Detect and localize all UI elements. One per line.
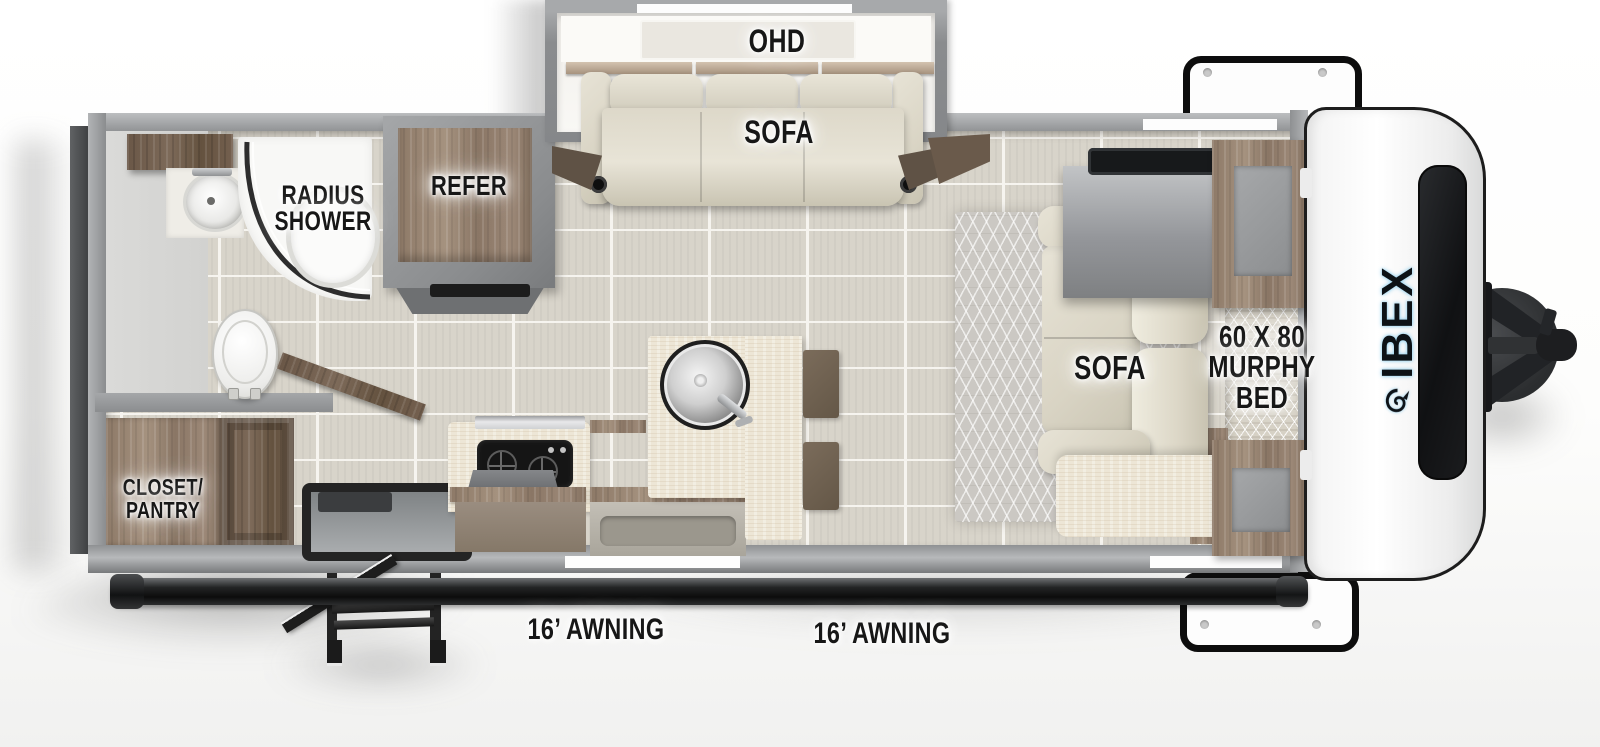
window-strip-bottom-wall-right — [1150, 556, 1282, 568]
label-murphy-bed: 60 X 80 MURPHY BED — [1208, 322, 1315, 413]
shadow-under-steps — [250, 640, 510, 710]
toilet-seat — [222, 320, 268, 384]
bathroom-divider-wall — [95, 393, 333, 412]
ottoman — [803, 442, 839, 510]
ohd-wood-trim — [696, 62, 818, 74]
step-foot-right — [430, 640, 446, 666]
step-foot-left — [327, 640, 342, 666]
kitchen-peninsula-column — [745, 336, 802, 540]
label-slide-sofa: SOFA — [744, 117, 814, 148]
faucet-icon — [192, 168, 232, 176]
awning-end-cap-right — [1276, 576, 1308, 607]
ibex-logo-text: IBEX — [1373, 264, 1423, 379]
toilet-hinge — [228, 388, 239, 400]
ottoman — [803, 350, 839, 418]
window-strip-bottom-wall-left — [565, 556, 740, 568]
cap-window — [1418, 165, 1467, 480]
awning-rail — [112, 578, 1308, 605]
label-ohd: OHD — [749, 26, 806, 57]
label-awning-right: 16’ AWNING — [814, 619, 951, 648]
rear-bumper — [70, 126, 89, 554]
sofa-seat-seam — [1044, 337, 1138, 339]
screw-icon — [1312, 620, 1321, 629]
tv-cabinet — [1063, 166, 1215, 298]
wall-left — [88, 113, 106, 573]
cap-hinge — [1300, 168, 1312, 198]
counter-wood-strip-mid — [590, 420, 646, 433]
window-strip-top-wall — [1143, 119, 1277, 130]
base-cabinet-left — [455, 502, 586, 552]
awning-end-cap-left — [110, 574, 144, 609]
ohd-wood-trim — [566, 62, 692, 74]
label-awning-left: 16’ AWNING — [528, 615, 665, 644]
slide-sofa-seam — [700, 112, 702, 202]
stove-knob — [548, 447, 554, 453]
screw-icon — [1203, 68, 1212, 77]
closet-door — [222, 418, 294, 545]
screw-icon — [1200, 620, 1209, 629]
ibex-logo: IBEX — [1373, 264, 1423, 416]
toilet-hinge — [250, 388, 261, 400]
base-cabinet-recess — [600, 516, 736, 546]
ibex-ram-icon — [1383, 386, 1413, 416]
label-refer: REFER — [431, 172, 507, 199]
bed-frame-window-bottom — [1232, 468, 1290, 532]
sink-drain-icon — [207, 197, 215, 205]
refer-vent — [430, 284, 530, 297]
label-main-sofa: SOFA — [1074, 352, 1146, 384]
label-closet-pantry: CLOSET/ PANTRY — [123, 476, 203, 521]
floorplan-canvas: IBEX OHD SOFA RADIUS SHOWER REFER CLOSET… — [0, 0, 1600, 747]
counter-wood-trim-left — [450, 487, 586, 502]
sink-drain-icon — [694, 374, 707, 387]
screw-icon — [1318, 68, 1327, 77]
bed-bench — [1056, 455, 1226, 537]
label-radius-shower: RADIUS SHOWER — [274, 182, 371, 235]
cap-hinge — [1300, 450, 1312, 480]
entry-step-tread — [318, 492, 392, 512]
bed-frame-window-top — [1234, 166, 1292, 276]
stove-knob — [560, 447, 566, 453]
stove-backsplash — [475, 416, 585, 429]
vanity-cabinet — [127, 134, 233, 170]
